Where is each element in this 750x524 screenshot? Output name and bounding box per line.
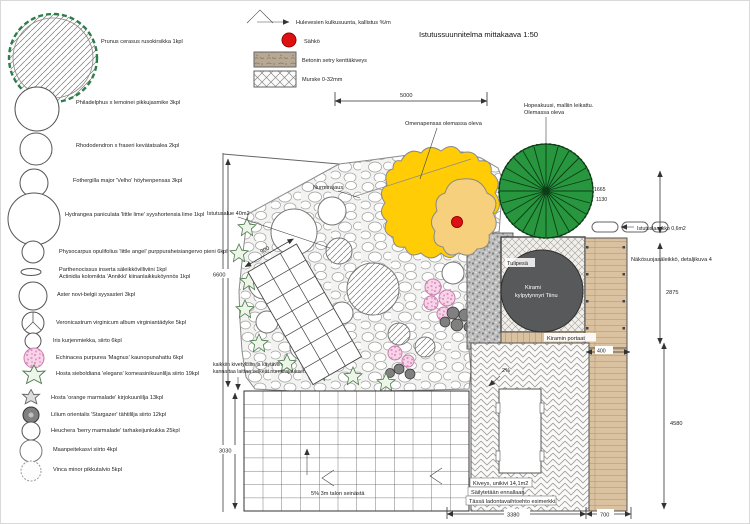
plant-label-7: Actinidia kolomikta 'Annikki' kiinanlaik… [59,274,190,280]
paving-label-2: Säilytetään ennallaan. [471,490,526,496]
plant-label-5: Physocarpus opulifolius 'little angel' p… [59,249,228,255]
plant-symbol-veronicastrum [22,312,44,334]
plant-symbol-hosta-orange [23,390,40,404]
site-plan: 900 Omenapensas olemassa oleva Hopeakuus… [207,92,712,519]
plan-drawing: Prunus cerasus rusokirsikka 1kpl Philade… [1,1,750,524]
plant-symbol-prunus [9,14,97,102]
note-line-2: kannattaa laittaa selkeät nurmirajaukset… [213,369,306,375]
plant-label-12: Hosta sieboldiana 'elegans' komeasinikuu… [56,371,199,377]
fieldstone-swatch [254,52,296,67]
firepit-label: Tulipesä [507,261,529,267]
symbol-legend: Hulevesien kulkusuunta, kallistus %/m Sä… [247,10,391,87]
wood-deck-lower [589,348,627,511]
plant-label-10: Iris kurjenmiekka, siirto 6kpl [53,338,122,344]
plant-label-15: Heuchera 'berry marmalade' tarhakeijunku… [51,428,180,434]
plant-symbol-hydrangea [8,193,60,245]
screen-label: Näkösuojasäleikkö, detaljikuva 4 [631,257,712,263]
paving-label-1: Kiveys, unikivi 14,1m2 [473,481,528,487]
plant-symbol-groundcover [20,440,42,462]
dim-step: 400 [597,349,606,355]
plant-label-3: Fothergilla major 'Velho' höyhenpensas 3… [73,178,182,184]
dim-left2: 3030 [219,449,231,455]
flow-label: Hulevesien kulkusuunta, kallistus %/m [296,20,391,26]
plant-symbol-lilium [23,407,39,423]
electric-point [452,217,463,228]
paving-inset [499,389,541,473]
crushed-stone-label: Murske 0-32mm [302,77,343,83]
dim-right4: 4580 [670,421,682,427]
plant-label-0: Prunus cerasus rusokirsikka 1kpl [101,39,183,45]
slope-house-label: 5% 3m talon seinästä [311,491,365,497]
flow-direction-icon [247,10,273,23]
lawn-top-edge [223,154,339,164]
spruce-tree [499,144,593,238]
electric-label: Sähkö [304,39,320,45]
dim-bottom1: 3380 [507,513,519,519]
plant-label-9: Veronicastrum virginicum album virginian… [56,320,186,326]
note-line-1: kaikkiin kivetyksiin ja käytäviin [213,362,282,368]
slope2-label: 2% [502,368,510,374]
plant-label-1: Philadelphus x lemoinei pikkujasmike 3kp… [76,100,180,106]
plant-symbol-rhododendron [20,133,52,165]
crushed-stone-swatch [254,71,296,87]
plant-symbol-iris [25,333,41,349]
plant-symbol-heuchera [22,422,40,440]
planter-label: Istutuslaatikko 0,6m2 [637,226,686,232]
paving-label-3: Tässä ladontavaihtoehto esimerkki. [469,499,557,505]
planting-plan-sheet: Prunus cerasus rusokirsikka 1kpl Philade… [0,0,750,524]
plant-label-17: Vinca minor pikkutalvio 5kpl [53,467,122,473]
tub-label-1: Kirami [525,285,541,291]
electric-point-icon [282,33,296,47]
plant-label-8: Aster novi-belgii syysasteri 3kpl [57,292,135,298]
dim-right2: 1130 [596,197,607,203]
plant-label-13: Hosta 'orange marmalade' kirjokuunlilja … [51,395,163,401]
stairs-label: Kiramin portaat [547,336,585,342]
dim-bottom2: 700 [600,513,609,519]
lawn-edge-label: Nurmirajaus [313,185,343,191]
plant-label-2: Rhododendron x fraseri kevätatsalea 2kpl [76,143,179,149]
plant-symbol-aster [19,282,47,310]
plant-symbol-vinca [21,461,41,481]
tub-label-2: kylpytynnyri Tiinu [515,293,558,299]
dim-right3: 2875 [666,290,678,296]
plant-label-4: Hydrangea paniculata 'little lime' syysh… [65,212,204,218]
plant-legend: Prunus cerasus rusokirsikka 1kpl Philade… [8,14,228,481]
plant-symbol-climbers [21,269,41,276]
plant-label-16: Maanpeitekasvi siirto 4kpl [53,447,117,453]
spruce-label-1: Hopeakuusi, malliin leikattu. [524,103,594,109]
plant-symbol-hosta-sieboldiana [23,365,45,384]
dim-right1: 1665 [594,187,606,193]
dim-left: 6600 [213,273,225,279]
fieldstone-label: Betonin setry kenttäkiveys [302,58,367,64]
plant-label-6: Parthenocissus inserta säleikkövilliviin… [59,267,167,273]
plant-symbol-physocarpus [22,241,44,263]
spruce-label-2: Olemassa oleva [524,110,565,116]
plant-label-14: Lilium orientalis 'Stargazer' tähtililja… [51,412,166,418]
page-title: Istutussuunnitelma mittakaava 1:50 [419,30,538,39]
plant-symbol-philadelphus [15,87,59,131]
apple-label: Omenapensas olemassa oleva [405,121,483,127]
dim-top: 5000 [400,93,412,99]
plant-label-11: Echinacea purpurea 'Magnus' kaunopunahat… [56,355,183,361]
wood-deck-upper [585,238,627,348]
